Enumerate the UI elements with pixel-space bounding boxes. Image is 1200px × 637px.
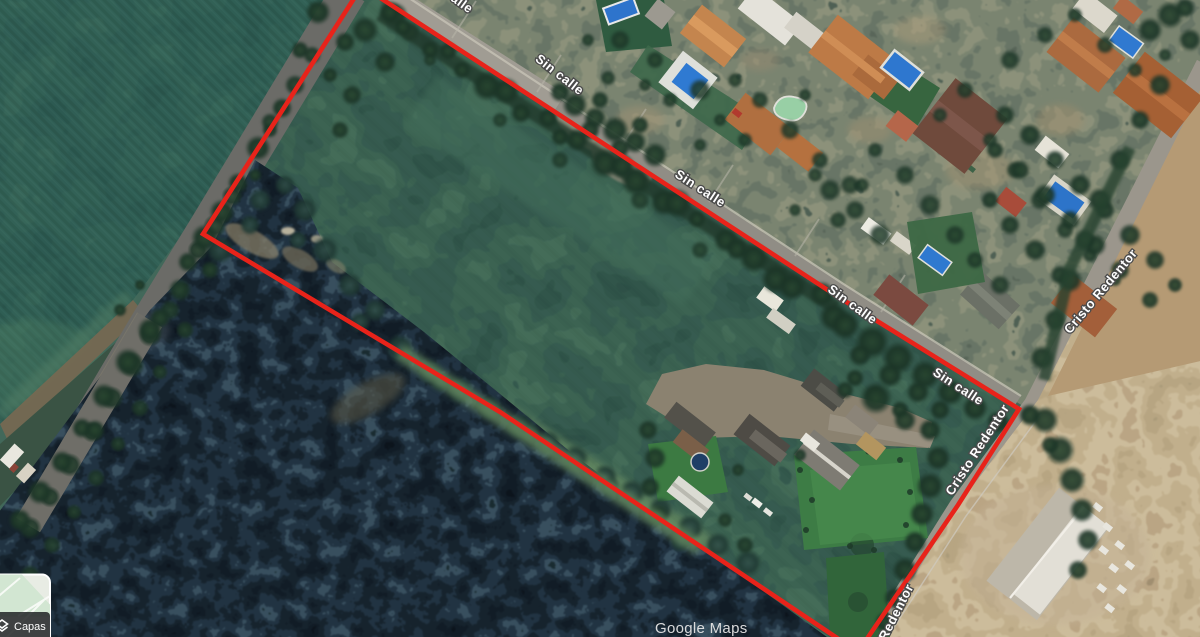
svg-text:Google Maps: Google Maps — [655, 620, 748, 637]
svg-text:Capas: Capas — [14, 621, 46, 633]
